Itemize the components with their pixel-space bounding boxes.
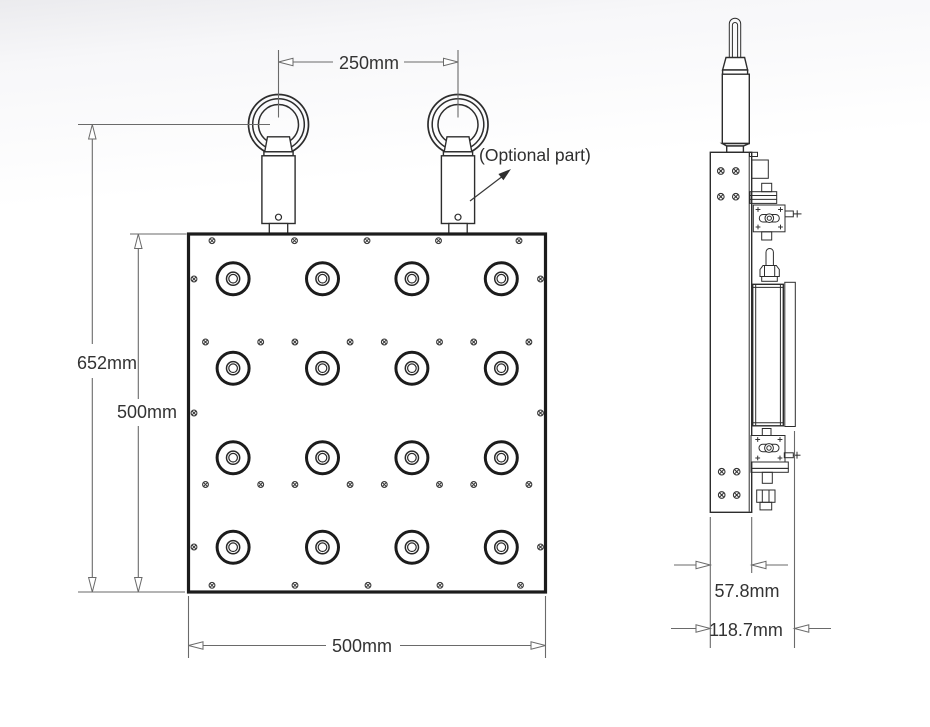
side-eyebolt-collar xyxy=(723,58,748,71)
connector-pin xyxy=(766,248,773,265)
eyebolt-lifting-rings xyxy=(249,95,489,235)
eyebolt-hole xyxy=(455,214,461,220)
upper-bracket xyxy=(750,160,802,240)
dim-arrow-right xyxy=(444,58,459,65)
dim-overall-height: 652mm xyxy=(77,353,137,373)
side-eyebolt-body xyxy=(722,74,749,143)
side-eyebolt-ring xyxy=(729,18,740,62)
rear-unit xyxy=(753,248,796,426)
eyebolt-hole xyxy=(276,214,282,220)
drawing-canvas: 250mm 652mm 500mm 500mm (Optional part) xyxy=(0,0,930,727)
eyebolt-collar xyxy=(265,137,293,152)
dim-arrow-left xyxy=(279,58,294,65)
eyebolt-body xyxy=(441,156,474,224)
eyebolt-collar xyxy=(444,137,472,152)
front-view xyxy=(189,95,546,593)
optional-part-note: (Optional part) xyxy=(479,145,591,165)
connector-nut xyxy=(760,266,779,277)
dim-panel-width: 500mm xyxy=(332,636,392,656)
dim-overall-depth: 118.7mm xyxy=(709,620,783,640)
adjust-bolt xyxy=(784,453,793,458)
side-eyebolt-stem xyxy=(727,146,744,152)
side-view xyxy=(710,18,801,512)
dim-eyebolt-spacing: 250mm xyxy=(339,53,399,73)
rear-rail xyxy=(785,282,796,426)
side-panel-plate xyxy=(710,152,751,512)
rear-box xyxy=(753,284,784,426)
technical-drawing: 250mm 652mm 500mm 500mm (Optional part) xyxy=(0,0,930,727)
lower-bracket xyxy=(751,429,801,510)
front-panel xyxy=(189,234,546,592)
adjust-bolt xyxy=(785,211,793,217)
eyebolt-body xyxy=(262,156,295,224)
connector-flange xyxy=(762,277,778,282)
dim-panel-height: 500mm xyxy=(117,402,177,422)
dim-body-depth: 57.8mm xyxy=(714,581,779,601)
